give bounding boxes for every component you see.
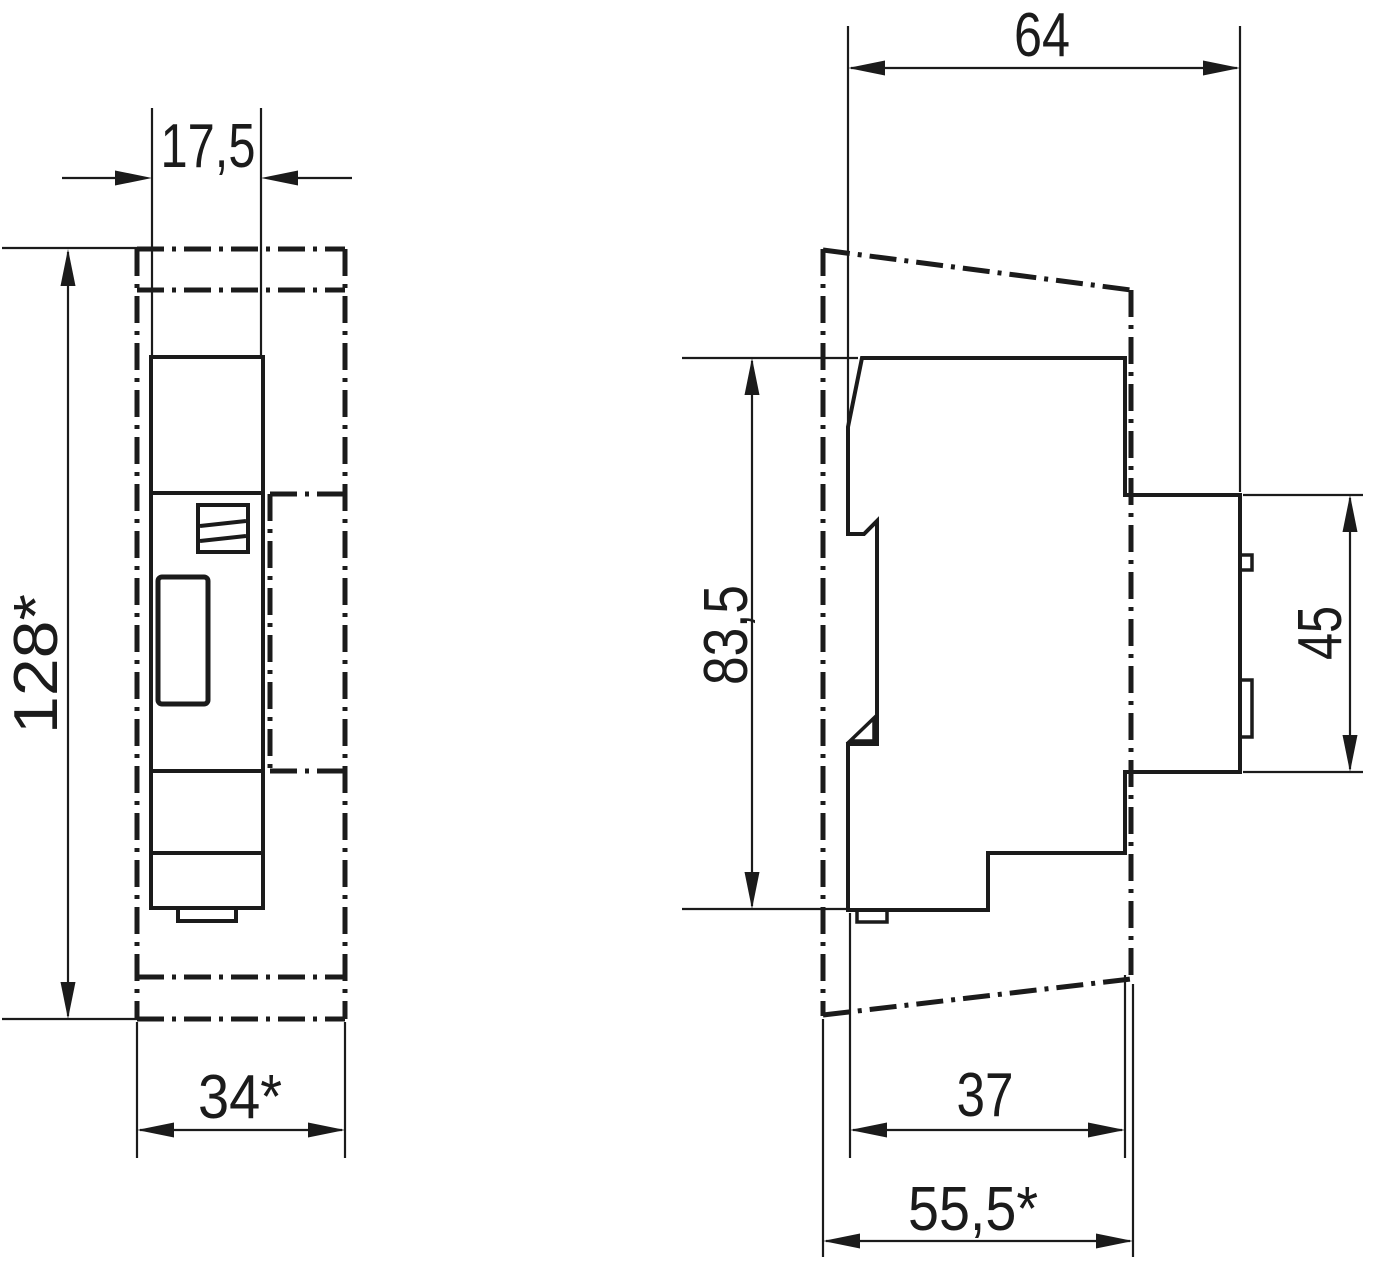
arrowhead-left [823,1234,860,1249]
side-envelope-top-slant-line [823,250,1131,290]
dim-side-body-height: 83,5 [682,358,858,909]
side-view: 64 83,5 45 37 [682,1,1363,1257]
arrowhead-up [61,249,76,286]
front-selector-switch-line-2 [200,536,246,541]
dimension-drawing: 17,5 128* 34* [0,0,1378,1268]
arrowhead-down [61,982,76,1019]
side-panel-height-label: 45 [1286,606,1355,660]
front-display-window [158,577,208,704]
arrowhead-right [1203,61,1240,76]
front-view: 17,5 128* 34* [2,108,352,1158]
dim-front-height: 128* [2,248,137,1019]
dim-side-depth: 64 [848,1,1240,492]
din-rail-clamp [850,718,874,741]
arrowhead-up [745,358,760,395]
side-envelope-bottom-slant-line [823,979,1131,1015]
side-lower-depth-label: 37 [957,1061,1014,1130]
front-selector-switch [198,505,248,552]
dim-side-panel-height: 45 [1243,495,1363,772]
arrowhead-right [115,171,152,186]
dim-front-width: 17,5 [62,108,352,356]
dim-side-lower-depth: 37 [850,913,1125,1158]
arrowhead-left [848,61,885,76]
arrowhead-right [1096,1234,1133,1249]
front-selector-switch-line-1 [200,521,246,526]
arrowhead-up [1343,495,1358,532]
device-side-profile [848,358,1240,910]
dimension-drawing-svg: 17,5 128* 34* [0,0,1378,1268]
side-depth-label: 64 [1014,1,1070,70]
front-height-label: 128* [2,594,71,734]
arrowhead-right [1088,1123,1125,1138]
dim-front-envelope-width: 34* [137,1022,345,1158]
arrowhead-right [308,1123,345,1138]
arrowhead-down [745,872,760,909]
arrowhead-left [137,1123,174,1138]
side-body-height-label: 83,5 [692,585,761,685]
front-width-label: 17,5 [161,112,256,181]
side-total-depth-label: 55,5* [908,1175,1038,1244]
arrowhead-down [1343,735,1358,772]
arrowhead-left [850,1123,887,1138]
front-envelope-width-label: 34* [198,1063,282,1132]
arrowhead-left [261,171,298,186]
